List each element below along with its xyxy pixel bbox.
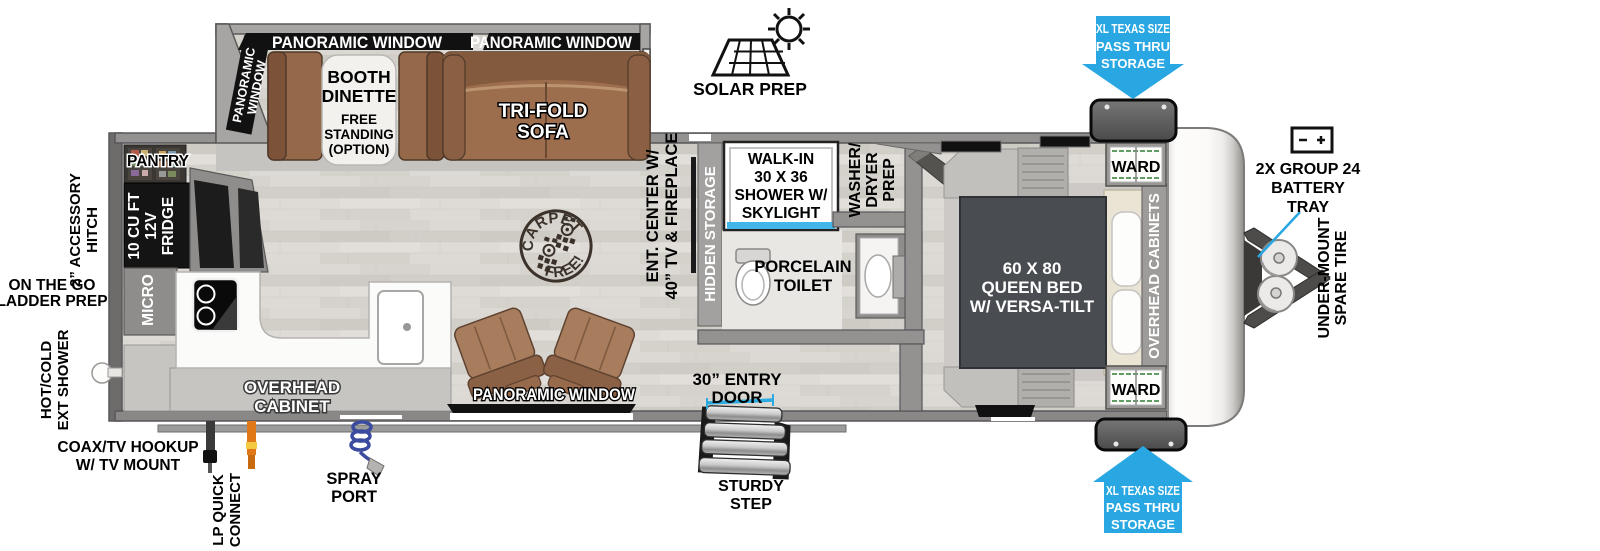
svg-text:COAX/TV HOOKUPW/ TV MOUNT: COAX/TV HOOKUPW/ TV MOUNT	[57, 439, 198, 474]
svg-text:SPRAYPORT: SPRAYPORT	[326, 470, 381, 506]
svg-text:WARD: WARD	[1112, 382, 1161, 399]
svg-text:BOOTHDINETTE: BOOTHDINETTE	[322, 67, 397, 106]
svg-text:UNDER-MOUNTSPARE TIRE: UNDER-MOUNTSPARE TIRE	[1316, 217, 1350, 338]
svg-text:PANORAMIC WINDOW: PANORAMIC WINDOW	[272, 34, 442, 52]
svg-text:HOT/COLDEXT SHOWER: HOT/COLDEXT SHOWER	[38, 329, 72, 430]
svg-text:XL TEXAS SIZEPASS THRUSTORAGE: XL TEXAS SIZEPASS THRUSTORAGE	[1106, 483, 1180, 532]
svg-text:XL TEXAS SIZEPASS THRUSTORAGE: XL TEXAS SIZEPASS THRUSTORAGE	[1096, 21, 1170, 71]
svg-text:WALK-IN30 X 36SHOWER W/SKYLIGH: WALK-IN30 X 36SHOWER W/SKYLIGHT	[735, 151, 829, 222]
svg-text:PANORAMIC WINDOW: PANORAMIC WINDOW	[470, 34, 632, 52]
svg-text:LP QUICKCONNECT: LP QUICKCONNECT	[210, 473, 244, 547]
svg-text:SOLAR PREP: SOLAR PREP	[693, 79, 807, 99]
svg-text:PANORAMIC WINDOW: PANORAMIC WINDOW	[473, 385, 636, 404]
svg-text:HIDDEN STORAGE: HIDDEN STORAGE	[702, 166, 719, 302]
svg-text:OVERHEAD CABINETS: OVERHEAD CABINETS	[1146, 193, 1163, 359]
svg-text:MICRO: MICRO	[140, 274, 157, 326]
svg-text:OVERHEADCABINET: OVERHEADCABINET	[244, 378, 340, 416]
svg-text:ON THE GOLADDER PREP: ON THE GOLADDER PREP	[0, 277, 108, 310]
svg-text:PANTRY: PANTRY	[127, 153, 190, 170]
svg-text:ENT. CENTER W/40” TV & FIREPLA: ENT. CENTER W/40” TV & FIREPLACE	[644, 133, 681, 300]
svg-text:WARD: WARD	[1112, 159, 1161, 176]
